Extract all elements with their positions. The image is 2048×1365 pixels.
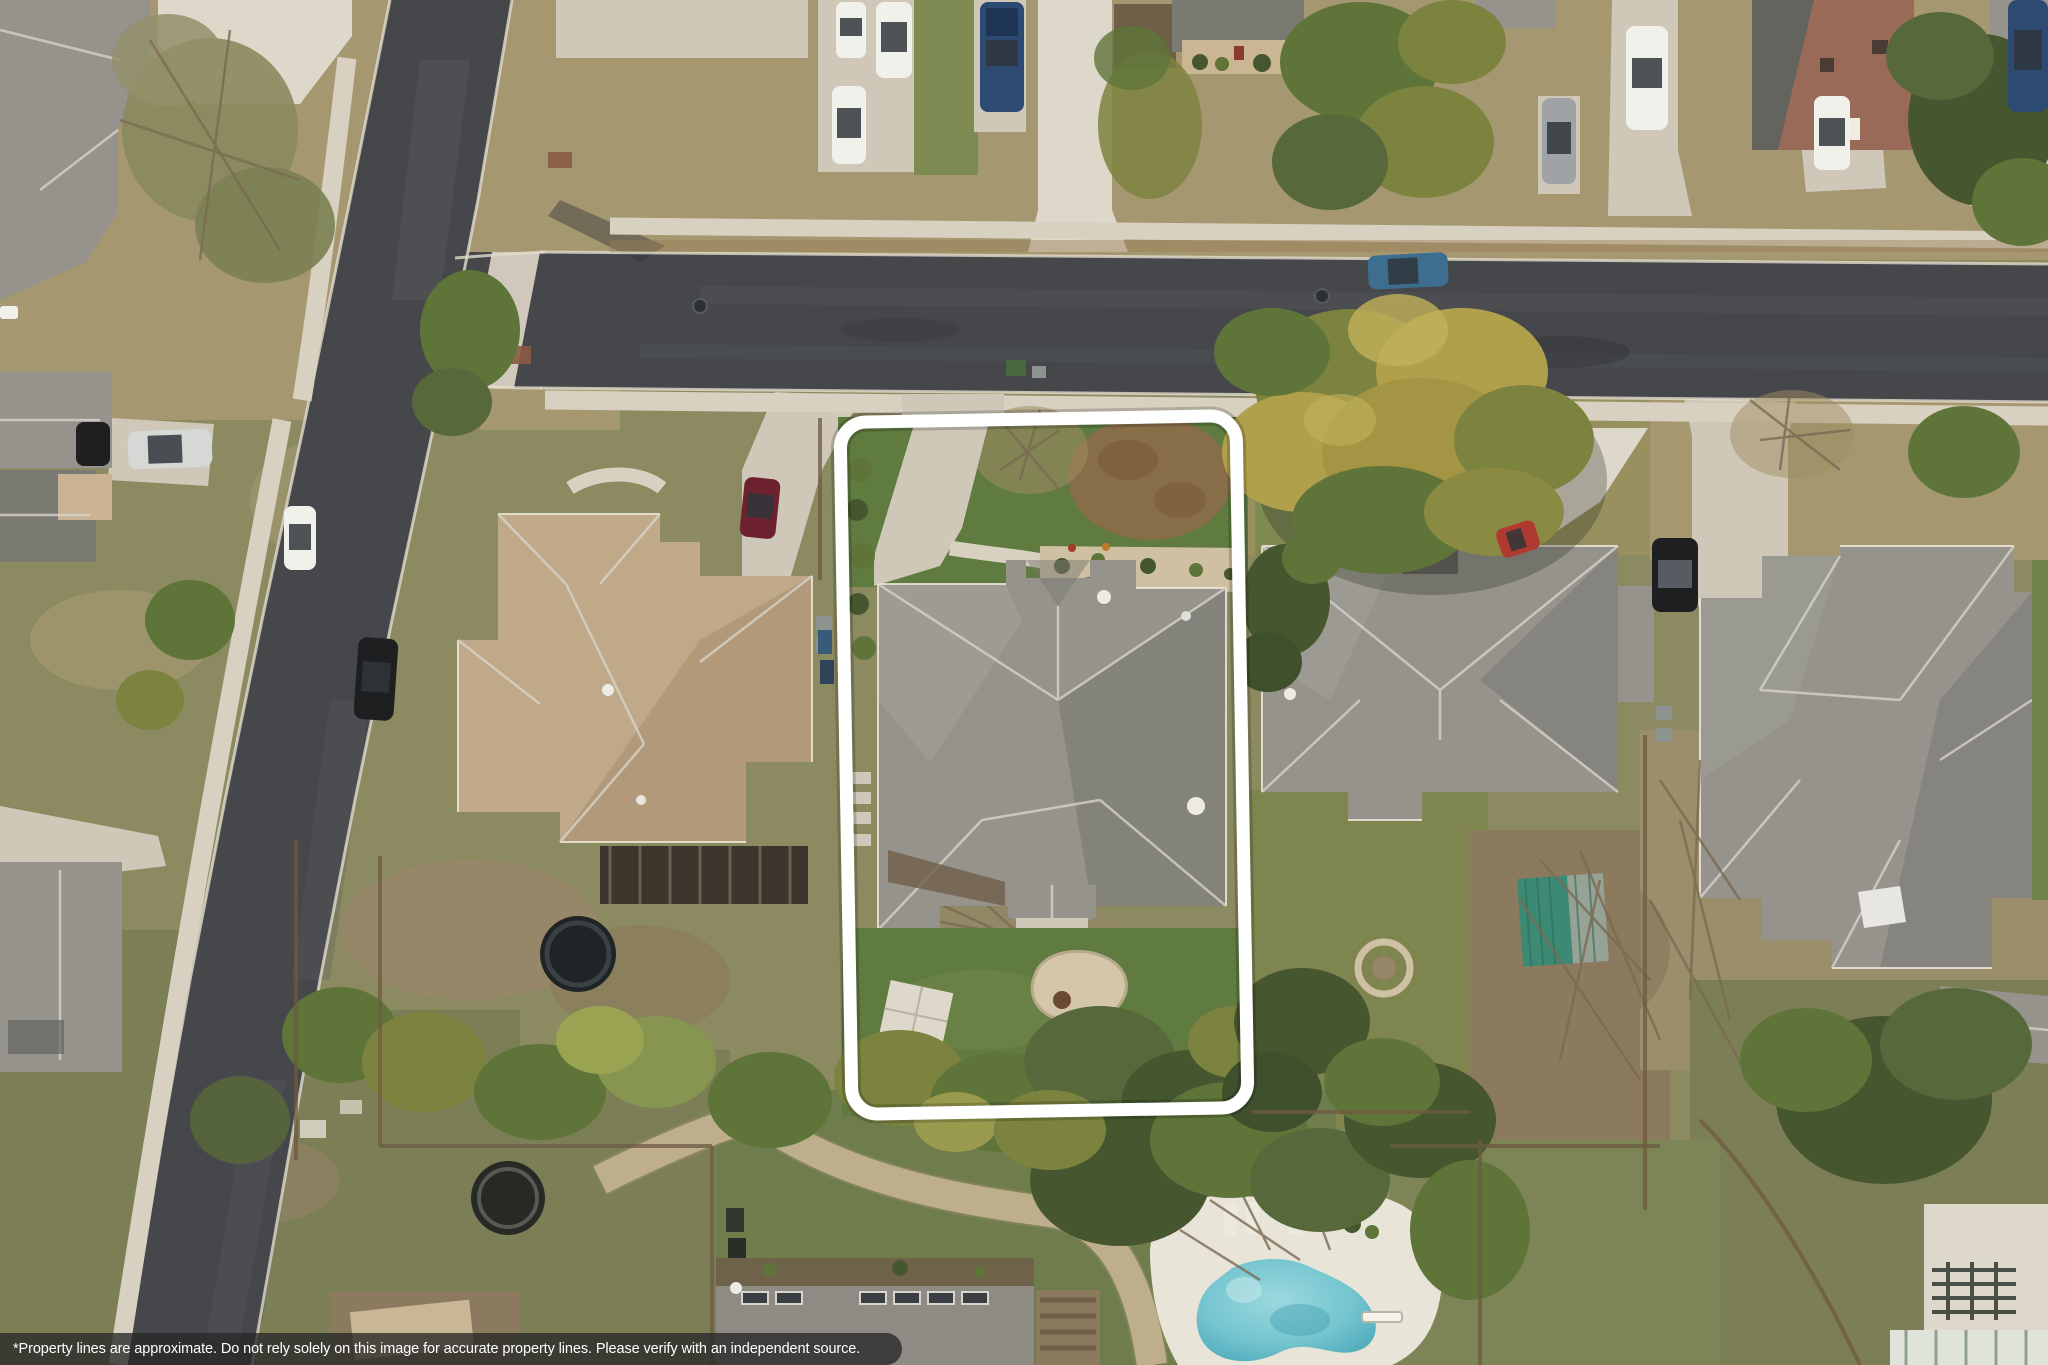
aerial-scene [0,0,2048,1365]
moving-car [1367,252,1449,290]
parked-pickup [980,2,1024,112]
disclaimer-bar: *Property lines are approximate. Do not … [0,1333,902,1365]
disclaimer-text: *Property lines are approximate. Do not … [13,1333,860,1365]
parked-car [1814,96,1850,170]
parked-car [0,306,18,319]
parked-car [876,2,912,78]
subject-lot [818,394,1248,1116]
parked-car [284,506,316,570]
stock-tank-pool [540,916,616,992]
parked-car [1542,98,1576,184]
parked-car [353,637,399,722]
diving-board [1362,1312,1402,1322]
parked-car [76,422,110,466]
parked-car [739,476,781,539]
parked-suv [1652,538,1698,612]
parked-car [836,2,866,58]
trampoline [471,1161,545,1235]
parked-suv [2008,0,2048,112]
parked-car [832,86,866,164]
parked-truck [1626,26,1668,130]
parked-suv [127,429,212,470]
aerial-photo: *Property lines are approximate. Do not … [0,0,2048,1365]
leaf-patch [1068,416,1232,540]
